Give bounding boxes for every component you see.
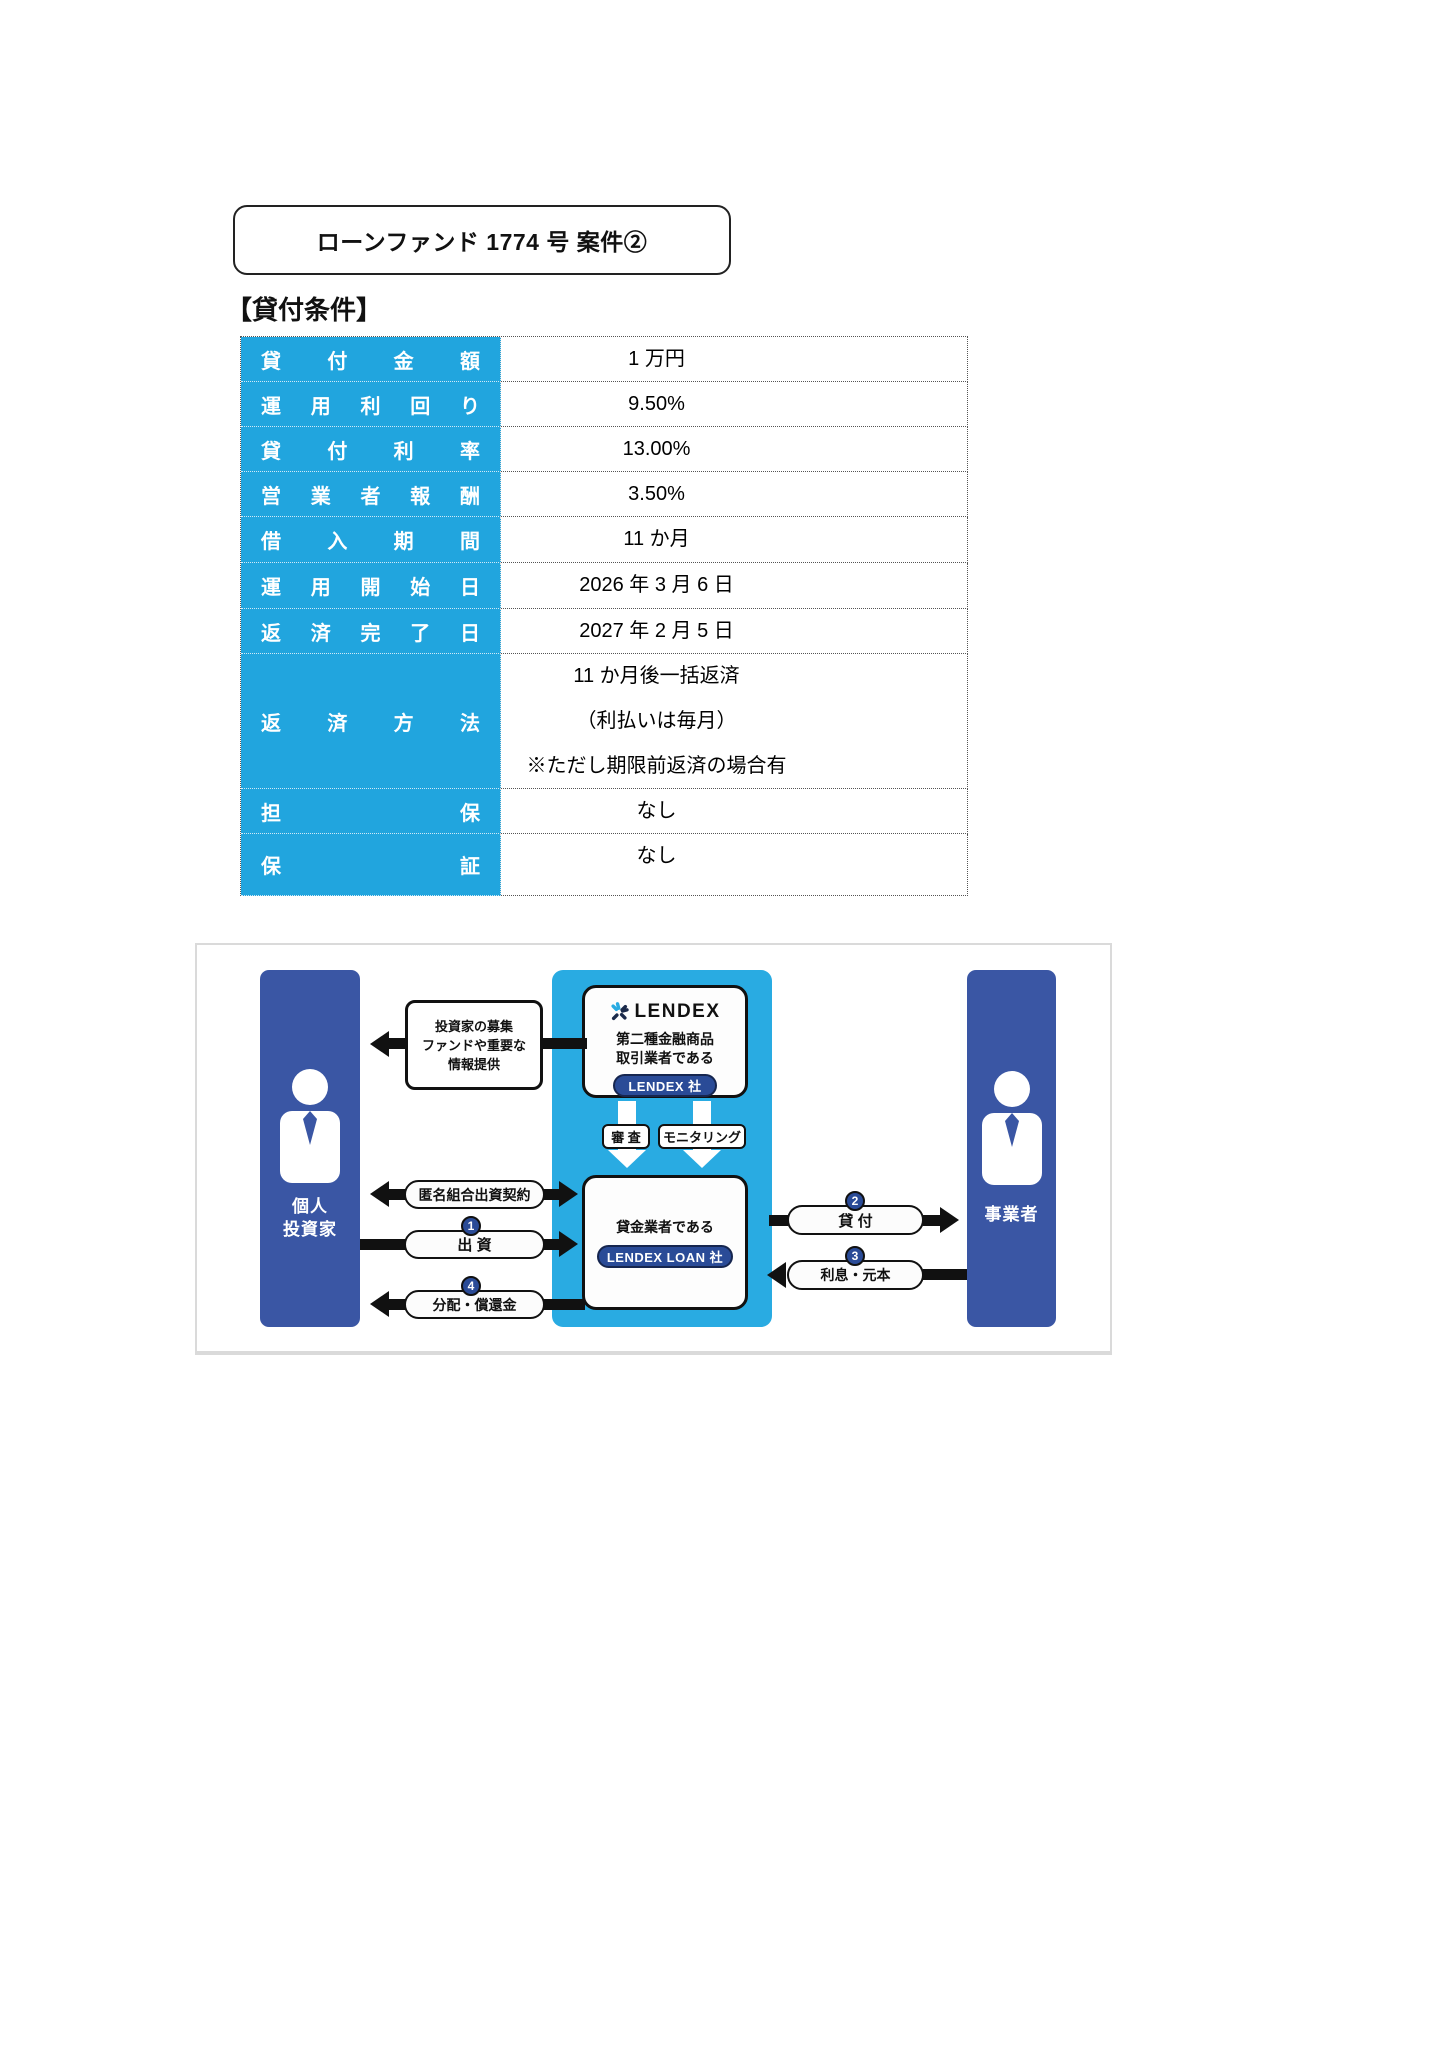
info-connector-bar (543, 1038, 587, 1049)
distribution-bar-left (387, 1299, 405, 1310)
person-icon (980, 1069, 1044, 1185)
row-label: 営業者報酬 (241, 472, 501, 517)
loan-badge: 2 (845, 1191, 865, 1211)
row-label: 貸付金額 (241, 337, 501, 382)
investment-arrow-right (559, 1231, 578, 1257)
table-row: 営業者報酬 3.50% (241, 472, 968, 517)
check-label: 審 査 (602, 1124, 650, 1149)
row-value: なし (501, 834, 968, 896)
fund-title-box: ローンファンド 1774 号 案件② (233, 205, 731, 275)
row-value: 1 万円 (501, 337, 968, 382)
scheme-diagram: 個人 投資家 事業者 審 査 モニタリング (195, 943, 1112, 1355)
row-value: 3.50% (501, 472, 968, 517)
row-value: 9.50% (501, 382, 968, 427)
row-value: 2026 年 3 月 6 日 (501, 563, 968, 609)
investment-badge: 1 (461, 1216, 481, 1236)
row-value: 13.00% (501, 427, 968, 472)
lendex-card: LENDEX 第二種金融商品 取引業者である LENDEX 社 (582, 985, 748, 1098)
fund-title: ローンファンド 1774 号 案件② (317, 223, 648, 257)
fund-info-box: 投資家の募集 ファンドや重要な 情報提供 (405, 1000, 543, 1090)
table-row: 運用開始日 2026 年 3 月 6 日 (241, 563, 968, 609)
investment-bar-left (360, 1239, 405, 1250)
business-column: 事業者 (967, 970, 1056, 1327)
investor-label: 個人 投資家 (260, 1195, 360, 1241)
section-heading: 【貸付条件】 (226, 290, 382, 327)
contract-arrow-right (559, 1181, 578, 1207)
row-label: 運用利回り (241, 382, 501, 427)
table-row: 運用利回り 9.50% (241, 382, 968, 427)
lendex-loan-pill: LENDEX LOAN 社 (597, 1245, 733, 1268)
monitor-label: モニタリング (658, 1124, 746, 1149)
row-value: 11 か月後一括返済 （利払いは毎月） ※ただし期限前返済の場合有 (501, 654, 968, 789)
row-label: 担保 (241, 789, 501, 834)
table-row: 貸付利率 13.00% (241, 427, 968, 472)
check-arrow-head (608, 1150, 646, 1168)
table-row: 返済方法 11 か月後一括返済 （利払いは毎月） ※ただし期限前返済の場合有 (241, 654, 968, 789)
row-label: 借入期間 (241, 517, 501, 563)
table-row: 借入期間 11 か月 (241, 517, 968, 563)
row-label: 貸付利率 (241, 427, 501, 472)
row-value: 11 か月 (501, 517, 968, 563)
row-label: 返済方法 (241, 654, 501, 789)
info-arrow-bar (387, 1038, 405, 1049)
business-label: 事業者 (967, 1203, 1056, 1226)
table-row: 返済完了日 2027 年 2 月 5 日 (241, 609, 968, 654)
monitor-arrow-head (683, 1150, 721, 1168)
lendex-logo: LENDEX (609, 1001, 720, 1023)
table-row: 貸付金額 1 万円 (241, 337, 968, 382)
contract-pill: 匿名組合出資契約 (404, 1180, 545, 1209)
loan-card-text: 貸金業者である (616, 1217, 714, 1237)
row-label: 運用開始日 (241, 563, 501, 609)
investor-column: 個人 投資家 (260, 970, 360, 1327)
row-label: 返済完了日 (241, 609, 501, 654)
lendex-card-text: 第二種金融商品 取引業者である (616, 1030, 714, 1068)
person-icon (278, 1067, 342, 1183)
row-value: 2027 年 2 月 5 日 (501, 609, 968, 654)
table-row: 担保 なし (241, 789, 968, 834)
interest-bar-right (923, 1269, 967, 1280)
row-value: なし (501, 789, 968, 834)
loan-conditions-table: 貸付金額 1 万円 運用利回り 9.50% 貸付利率 13.00% 営業者報酬 … (240, 336, 968, 896)
document-page: ローンファンド 1774 号 案件② 【貸付条件】 貸付金額 1 万円 運用利回… (0, 0, 1449, 2048)
lendex-loan-card: 貸金業者である LENDEX LOAN 社 (582, 1175, 748, 1310)
interest-arrow-left (767, 1262, 786, 1288)
table-row: 保証 なし (241, 834, 968, 896)
loan-bar-left (769, 1215, 788, 1226)
distribution-badge: 4 (461, 1276, 481, 1296)
lendex-wordmark: LENDEX (634, 1001, 720, 1023)
lendex-company-pill: LENDEX 社 (613, 1074, 717, 1097)
distribution-bar-right (544, 1299, 585, 1310)
loan-bar-right (923, 1215, 941, 1226)
loan-arrow-right (940, 1207, 959, 1233)
contract-bar-left (387, 1189, 405, 1200)
lendex-logo-icon (609, 1002, 629, 1022)
interest-badge: 3 (845, 1246, 865, 1266)
row-label: 保証 (241, 834, 501, 896)
